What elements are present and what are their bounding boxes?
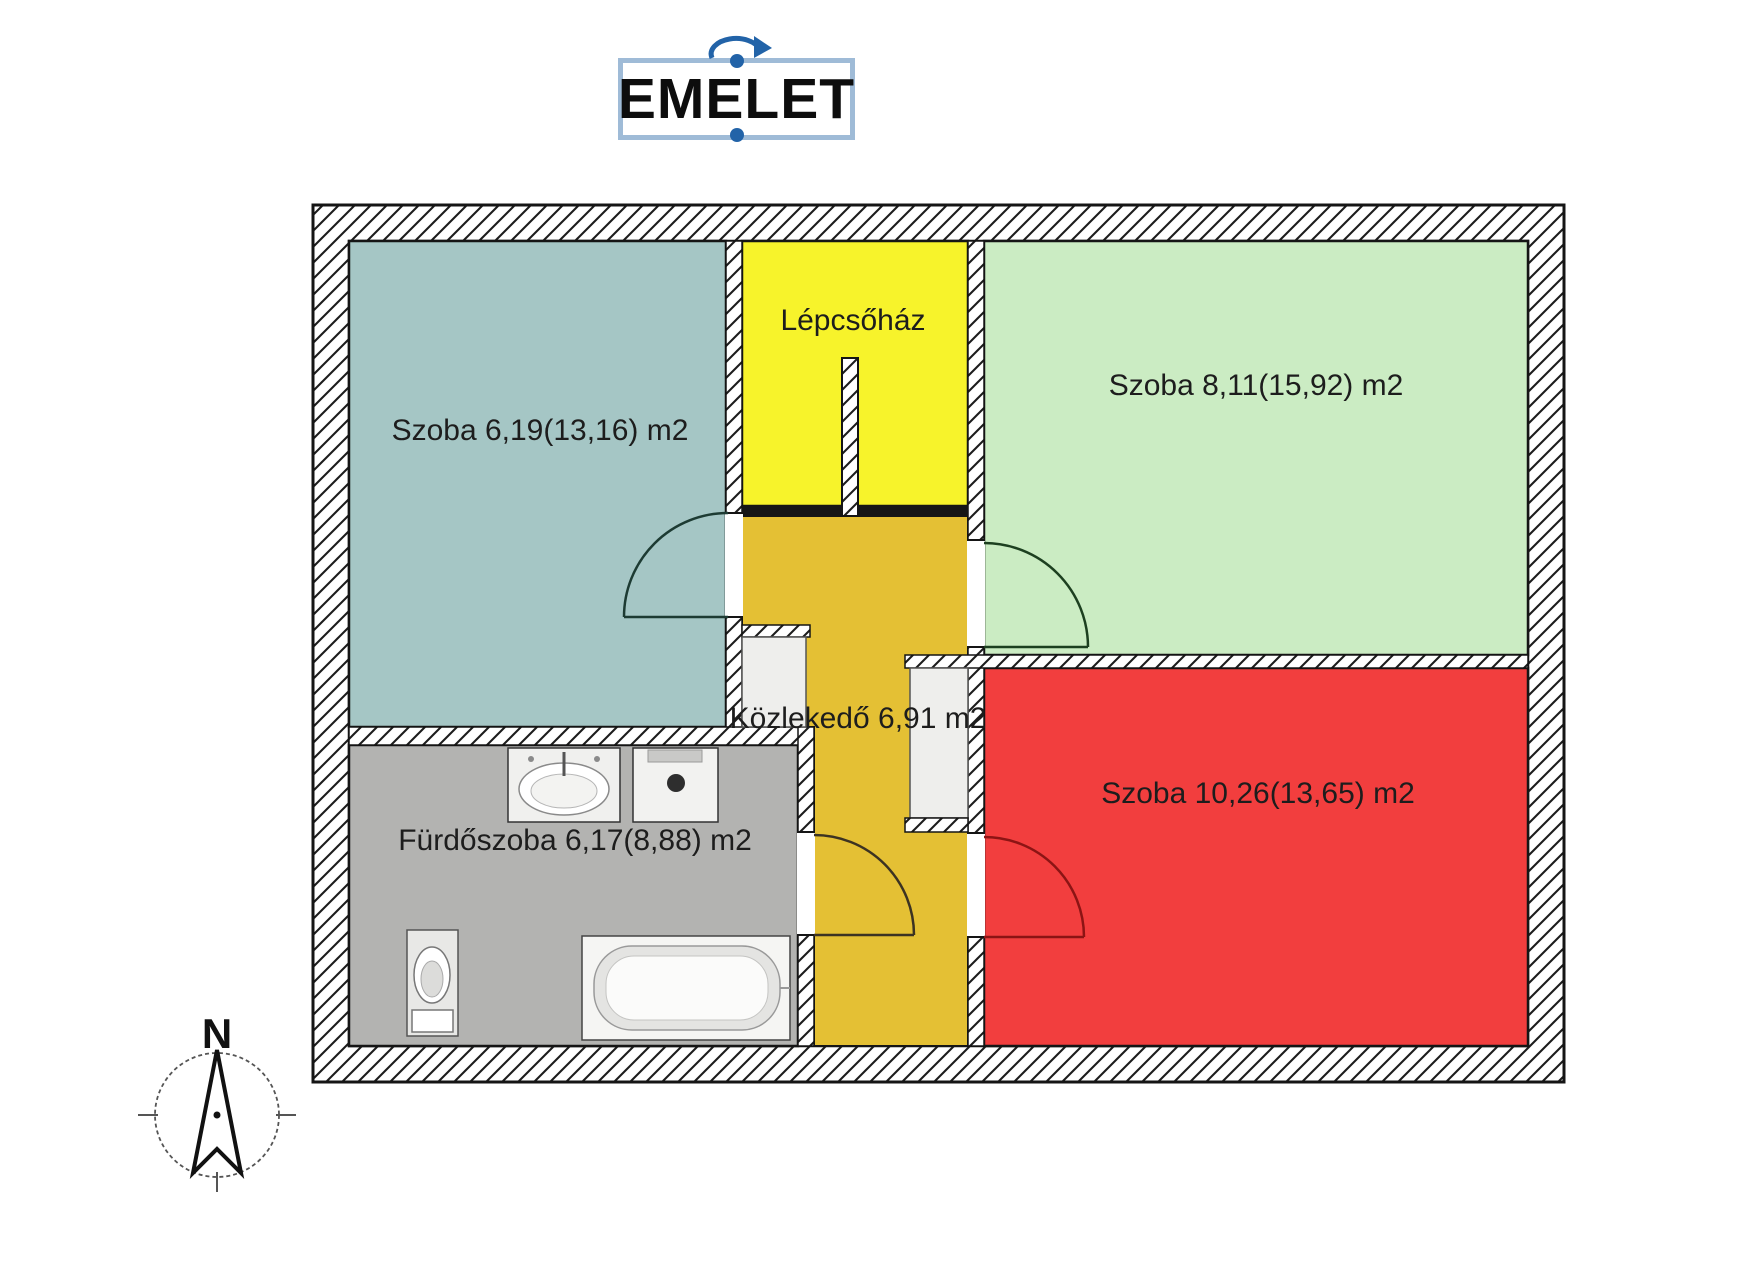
selection-handle-top[interactable] bbox=[730, 54, 744, 68]
compass-north-label: N bbox=[202, 1010, 232, 1057]
sink-fixture bbox=[508, 748, 620, 822]
door-opening-furdoszoba bbox=[797, 832, 815, 935]
niche-east bbox=[910, 668, 968, 818]
page-title: EMELET bbox=[618, 71, 855, 128]
label-furdoszoba: Fürdőszoba 6,17(8,88) m2 bbox=[398, 824, 752, 857]
bathtub-fixture bbox=[582, 936, 790, 1040]
label-lepcsohaz: Lépcsőház bbox=[780, 304, 925, 337]
toilet-fixture bbox=[407, 930, 458, 1036]
wall-green-red bbox=[905, 655, 1528, 668]
compass: N bbox=[138, 1010, 296, 1192]
wall-teal-east bbox=[726, 241, 742, 745]
selection-handle-bottom[interactable] bbox=[730, 128, 744, 142]
label-kozlekedo: Közlekedő 6,91 m2 bbox=[730, 702, 987, 735]
door-opening-szoba-3 bbox=[967, 833, 985, 937]
floor-plan-drawing: Szoba 6,19(13,16) m2 Lépcsőház Szoba 8,1… bbox=[0, 0, 1738, 1280]
floor-plan-page: Szoba 6,19(13,16) m2 Lépcsőház Szoba 8,1… bbox=[0, 0, 1738, 1280]
niche-west-top-wall bbox=[742, 625, 810, 637]
label-szoba-3: Szoba 10,26(13,65) m2 bbox=[1101, 777, 1415, 810]
label-szoba-1: Szoba 6,19(13,16) m2 bbox=[392, 414, 689, 447]
niche-east-bottom-wall bbox=[905, 818, 968, 832]
label-szoba-2: Szoba 8,11(15,92) m2 bbox=[1109, 369, 1404, 402]
room-szoba-1 bbox=[349, 241, 726, 727]
door-opening-szoba-2 bbox=[967, 540, 985, 647]
door-opening-szoba-1 bbox=[725, 513, 743, 617]
washing-machine-fixture bbox=[633, 748, 718, 822]
stair-railing-wall bbox=[842, 358, 858, 516]
room-szoba-3 bbox=[984, 668, 1528, 1046]
room-szoba-2 bbox=[984, 241, 1528, 655]
